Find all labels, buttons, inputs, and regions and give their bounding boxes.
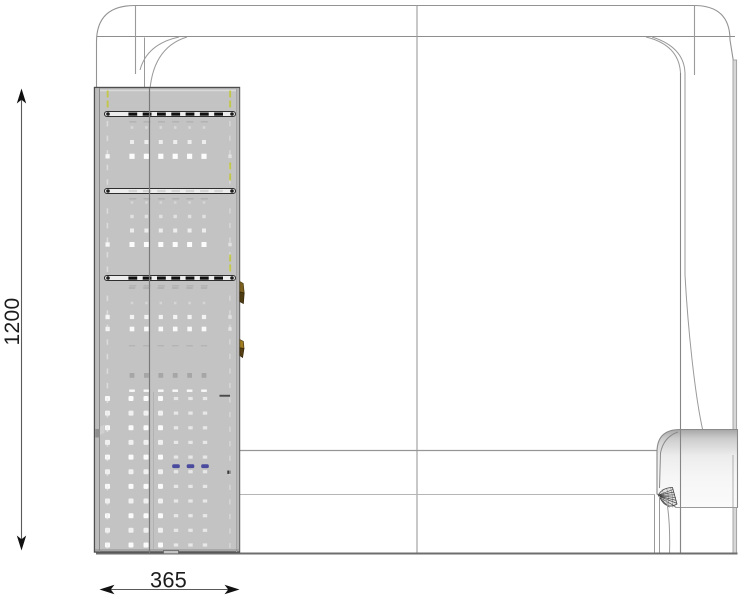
svg-text:1200: 1200 [1,298,24,346]
svg-text:365: 365 [150,567,187,592]
